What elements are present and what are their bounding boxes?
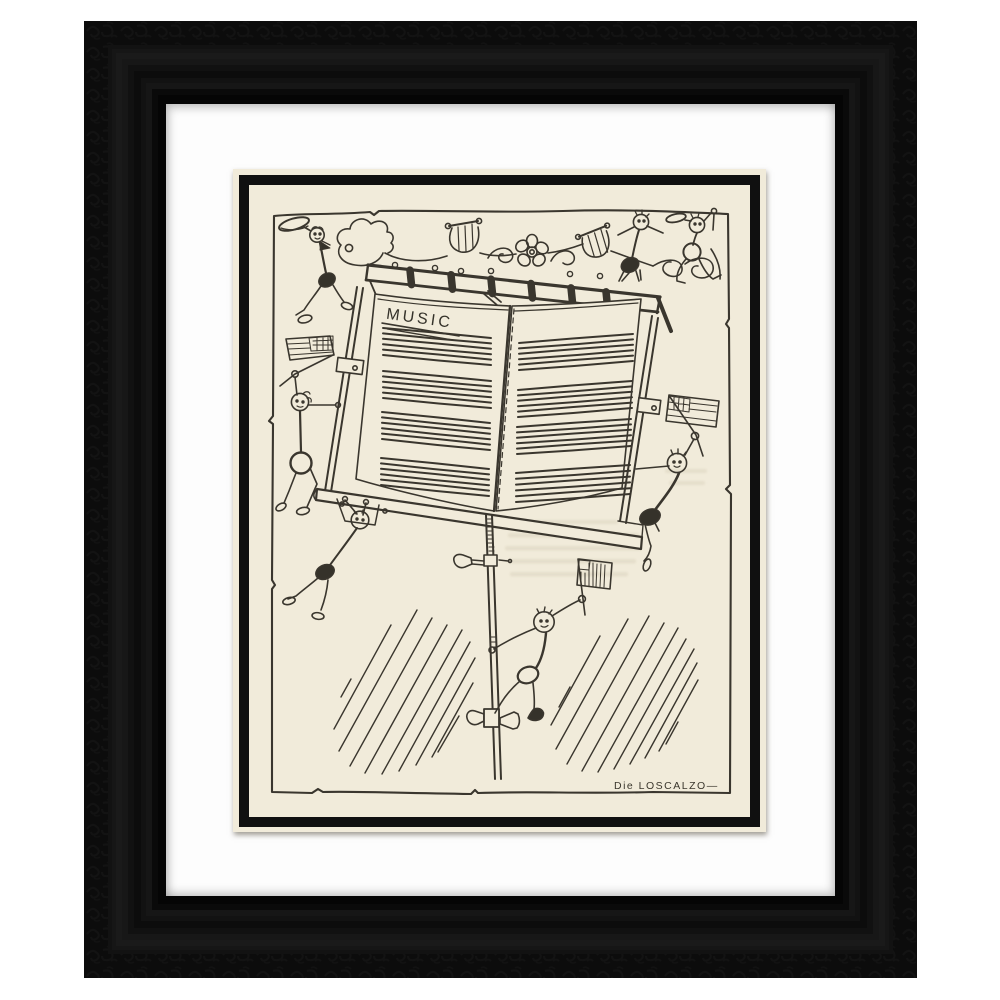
svg-text:Die LOSCALZO—: Die LOSCALZO— <box>614 780 719 792</box>
